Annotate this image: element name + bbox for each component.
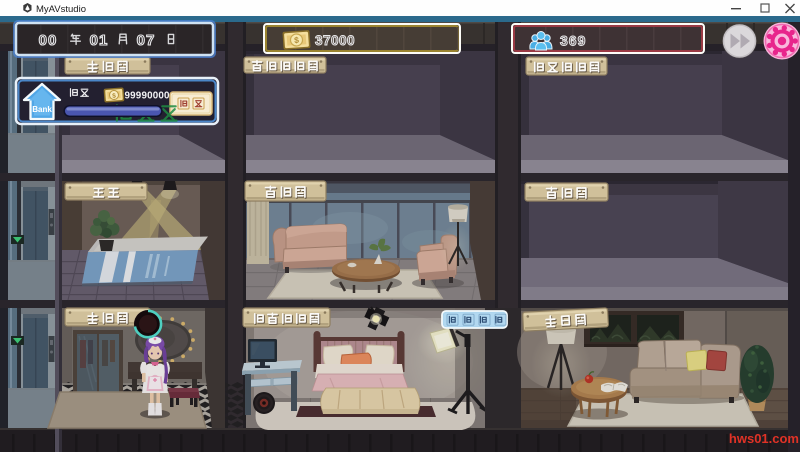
svg-text:hws01.com: hws01.com bbox=[729, 431, 799, 446]
svg-text:07: 07 bbox=[137, 32, 156, 49]
svg-text:Bank: Bank bbox=[32, 105, 52, 114]
svg-text:MyAVstudio: MyAVstudio bbox=[36, 4, 86, 15]
svg-text:01: 01 bbox=[90, 32, 109, 49]
svg-text:37000: 37000 bbox=[315, 33, 355, 48]
svg-text:369: 369 bbox=[560, 33, 586, 49]
svg-text:99990000: 99990000 bbox=[125, 91, 171, 102]
svg-text:00: 00 bbox=[39, 32, 58, 49]
svg-text:$: $ bbox=[294, 35, 300, 45]
